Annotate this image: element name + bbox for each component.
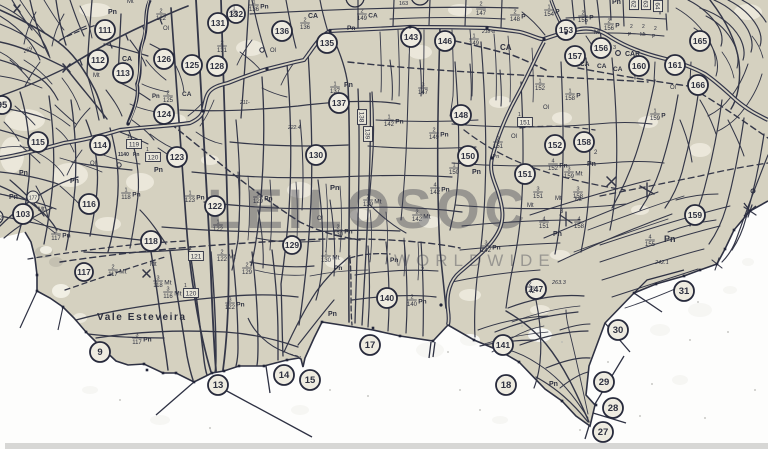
svg-text:1: 1 xyxy=(518,112,521,118)
svg-text:Pn: Pn xyxy=(553,231,562,238)
svg-text:Mt: Mt xyxy=(374,199,381,206)
svg-text:123: 123 xyxy=(170,152,184,162)
svg-text:161: 161 xyxy=(668,60,682,70)
svg-text:27: 27 xyxy=(598,427,609,438)
svg-text:1: 1 xyxy=(387,115,390,121)
svg-text:62: 62 xyxy=(629,0,636,8)
svg-text:142: 142 xyxy=(430,190,441,196)
svg-text:116: 116 xyxy=(163,294,173,300)
svg-text:139: 139 xyxy=(363,129,370,140)
svg-text:3: 3 xyxy=(484,241,487,247)
svg-text:Mt: Mt xyxy=(575,171,582,178)
svg-text:2: 2 xyxy=(303,18,306,24)
svg-text:211-: 211- xyxy=(239,100,250,106)
svg-text:158: 158 xyxy=(574,224,585,230)
svg-text:155: 155 xyxy=(578,18,589,24)
svg-text:122: 122 xyxy=(208,201,222,211)
svg-text:151: 151 xyxy=(493,144,504,150)
svg-text:130: 130 xyxy=(333,232,344,238)
svg-text:CA: CA xyxy=(580,61,590,68)
svg-text:131: 131 xyxy=(217,48,228,54)
svg-text:3: 3 xyxy=(166,287,169,293)
svg-text:17: 17 xyxy=(365,340,376,351)
svg-text:2: 2 xyxy=(189,246,192,252)
svg-text:Ol: Ol xyxy=(90,161,96,167)
svg-text:Mt: Mt xyxy=(332,255,339,262)
svg-text:Mt: Mt xyxy=(38,207,45,213)
svg-text:Pn: Pn xyxy=(154,167,163,174)
svg-text:2: 2 xyxy=(607,19,610,25)
svg-text:18: 18 xyxy=(501,380,512,391)
svg-text:150: 150 xyxy=(449,170,460,176)
svg-text:3: 3 xyxy=(156,276,159,282)
svg-text:126: 126 xyxy=(157,54,171,64)
svg-text:143: 143 xyxy=(404,32,418,42)
svg-text:146: 146 xyxy=(438,36,452,46)
svg-text:CA: CA xyxy=(368,13,378,20)
svg-text:Mt: Mt xyxy=(174,291,181,298)
svg-text:Mt: Mt xyxy=(127,0,134,5)
svg-text:2: 2 xyxy=(245,263,248,269)
svg-text:157: 157 xyxy=(568,51,582,61)
svg-text:1: 1 xyxy=(188,191,191,197)
svg-text:2: 2 xyxy=(654,26,657,32)
svg-text:Pn: Pn xyxy=(132,192,140,199)
svg-text:Mt: Mt xyxy=(150,262,157,268)
svg-text:1: 1 xyxy=(472,34,475,40)
svg-text:Pn: Pn xyxy=(559,163,567,170)
svg-text:114: 114 xyxy=(93,140,107,150)
svg-text:2: 2 xyxy=(528,282,531,288)
svg-text:CAR: CAR xyxy=(625,51,640,58)
svg-text:Pn: Pn xyxy=(344,229,352,236)
svg-text:149: 149 xyxy=(429,135,440,141)
svg-text:Mt: Mt xyxy=(527,203,534,209)
svg-text:112: 112 xyxy=(91,55,105,65)
svg-text:129: 129 xyxy=(242,270,253,276)
svg-text:64: 64 xyxy=(653,2,660,10)
svg-text:151: 151 xyxy=(520,120,531,127)
svg-text:2: 2 xyxy=(642,24,645,30)
svg-text:177: 177 xyxy=(29,196,38,202)
svg-text:136: 136 xyxy=(300,25,311,31)
svg-text:140: 140 xyxy=(407,302,418,308)
svg-text:138: 138 xyxy=(357,112,364,123)
svg-text:2: 2 xyxy=(410,295,413,301)
svg-text:9: 9 xyxy=(97,347,102,358)
svg-text:122: 122 xyxy=(213,227,224,233)
svg-text:1: 1 xyxy=(452,163,455,169)
svg-text:158: 158 xyxy=(573,194,584,200)
svg-text:15: 15 xyxy=(305,375,316,386)
svg-text:152: 152 xyxy=(535,86,546,92)
svg-text:Pn: Pn xyxy=(347,25,355,32)
svg-text:129: 129 xyxy=(253,199,264,205)
svg-text:136: 136 xyxy=(275,26,289,36)
svg-text:CA: CA xyxy=(182,91,192,98)
svg-text:4: 4 xyxy=(577,217,580,223)
svg-text:Pn: Pn xyxy=(328,311,337,318)
svg-text:Pn: Pn xyxy=(344,82,353,89)
svg-text:3: 3 xyxy=(421,83,424,89)
svg-text:Ol: Ol xyxy=(670,85,676,91)
svg-text:Pn: Pn xyxy=(334,265,342,272)
svg-text:1: 1 xyxy=(538,79,541,85)
svg-text:14: 14 xyxy=(279,370,290,381)
svg-text:118: 118 xyxy=(121,195,131,201)
svg-text:Mt: Mt xyxy=(228,254,235,261)
svg-text:Pn: Pn xyxy=(418,299,426,306)
svg-text:2: 2 xyxy=(496,137,499,143)
svg-text:117: 117 xyxy=(77,267,91,277)
svg-text:218-a: 218-a xyxy=(481,29,495,35)
svg-text:Pn: Pn xyxy=(492,245,500,252)
svg-text:Pn: Pn xyxy=(472,169,481,176)
svg-text:2: 2 xyxy=(166,91,169,97)
svg-text:142: 142 xyxy=(481,248,492,254)
svg-text:Pn: Pn xyxy=(236,302,244,309)
svg-text:156: 156 xyxy=(604,26,615,32)
svg-text:4: 4 xyxy=(648,235,651,241)
svg-text:13: 13 xyxy=(213,380,224,391)
svg-text:117: 117 xyxy=(132,340,142,346)
svg-text:115: 115 xyxy=(31,137,45,147)
svg-text:31: 31 xyxy=(679,286,690,297)
svg-text:124: 124 xyxy=(157,109,171,119)
svg-text:120: 120 xyxy=(148,155,159,162)
svg-text:1: 1 xyxy=(232,6,235,12)
svg-text:151: 151 xyxy=(518,169,532,179)
svg-text:3: 3 xyxy=(567,167,570,173)
svg-text:CA: CA xyxy=(613,66,623,73)
svg-text:130: 130 xyxy=(309,150,323,160)
svg-text:113: 113 xyxy=(116,68,130,78)
svg-text:Pn: Pn xyxy=(264,196,272,203)
svg-text:28: 28 xyxy=(608,403,619,414)
svg-text:P: P xyxy=(615,23,620,30)
svg-text:Mt: Mt xyxy=(164,280,171,287)
svg-text:1: 1 xyxy=(256,192,259,198)
svg-text:1140: 1140 xyxy=(118,152,129,158)
svg-text:122: 122 xyxy=(156,16,167,22)
svg-text:147: 147 xyxy=(418,90,429,96)
svg-text:120: 120 xyxy=(186,291,197,298)
svg-text:131: 131 xyxy=(211,18,225,28)
svg-text:137: 137 xyxy=(330,89,341,95)
svg-text:2: 2 xyxy=(336,225,339,231)
svg-text:CA: CA xyxy=(122,56,132,63)
svg-text:1: 1 xyxy=(547,5,550,11)
svg-text:Pn: Pn xyxy=(62,233,70,240)
svg-text:2: 2 xyxy=(513,10,516,16)
svg-text:1: 1 xyxy=(146,147,149,153)
svg-text:1: 1 xyxy=(54,229,57,235)
svg-text:Pn: Pn xyxy=(9,194,18,201)
svg-text:158: 158 xyxy=(565,96,576,102)
svg-text:Ol: Ol xyxy=(270,48,276,54)
svg-text:152: 152 xyxy=(548,140,562,150)
svg-text:CA: CA xyxy=(597,63,607,70)
svg-text:137: 137 xyxy=(332,98,346,108)
svg-text:Mt: Mt xyxy=(640,32,646,38)
svg-text:2: 2 xyxy=(581,11,584,17)
svg-text:Mt: Mt xyxy=(119,269,126,276)
svg-text:Pn: Pn xyxy=(441,187,449,194)
svg-text:122: 122 xyxy=(225,305,236,311)
svg-text:Pn: Pn xyxy=(19,170,28,177)
svg-text:159: 159 xyxy=(564,174,575,180)
svg-text:150: 150 xyxy=(461,151,475,161)
svg-text:95: 95 xyxy=(0,100,8,111)
svg-text:63: 63 xyxy=(641,0,648,8)
svg-text:Pn: Pn xyxy=(196,195,204,202)
svg-text:2: 2 xyxy=(479,2,482,8)
svg-text:Pn: Pn xyxy=(152,94,160,100)
svg-text:2: 2 xyxy=(111,265,114,271)
svg-text:156: 156 xyxy=(594,43,608,53)
svg-text:2: 2 xyxy=(159,9,162,15)
svg-text:33: 33 xyxy=(231,13,238,19)
svg-text:Pn: Pn xyxy=(108,9,117,16)
svg-text:Pn: Pn xyxy=(664,234,676,244)
svg-text:Pn: Pn xyxy=(549,381,558,388)
svg-text:3: 3 xyxy=(135,333,138,339)
svg-text:2: 2 xyxy=(366,195,369,201)
svg-text:1: 1 xyxy=(124,188,127,194)
svg-text:1: 1 xyxy=(653,109,656,115)
svg-text:Pn: Pn xyxy=(143,337,151,344)
svg-text:Ol: Ol xyxy=(511,134,517,140)
svg-text:2: 2 xyxy=(220,250,223,256)
svg-text:Ol: Ol xyxy=(317,216,323,222)
svg-text:4: 4 xyxy=(433,183,436,189)
svg-text:103: 103 xyxy=(16,209,30,219)
svg-text:121: 121 xyxy=(191,254,202,261)
svg-text:118: 118 xyxy=(153,283,163,289)
svg-text:147: 147 xyxy=(476,11,487,17)
svg-text:P: P xyxy=(661,113,666,120)
svg-text:Ol: Ol xyxy=(543,105,549,111)
svg-text:3: 3 xyxy=(613,45,616,51)
svg-text:130: 130 xyxy=(321,258,332,264)
svg-text:165: 165 xyxy=(693,36,707,46)
svg-text:1: 1 xyxy=(324,251,327,257)
svg-text:122: 122 xyxy=(217,257,228,263)
svg-text:2: 2 xyxy=(432,128,435,134)
svg-text:149: 149 xyxy=(469,41,480,47)
svg-text:149: 149 xyxy=(357,16,368,22)
svg-text:135: 135 xyxy=(320,38,334,48)
svg-text:222.4: 222.4 xyxy=(287,125,301,131)
svg-text:Pn: Pn xyxy=(440,132,448,139)
svg-text:4: 4 xyxy=(551,159,554,165)
svg-text:30: 30 xyxy=(613,325,624,336)
svg-text:29: 29 xyxy=(599,377,610,388)
svg-text:136: 136 xyxy=(249,7,260,13)
svg-text:118: 118 xyxy=(144,236,158,246)
svg-text:Pn: Pn xyxy=(260,4,268,11)
svg-text:2: 2 xyxy=(415,210,418,216)
svg-text:CA: CA xyxy=(500,43,512,52)
svg-text:142: 142 xyxy=(525,289,536,295)
svg-text:128: 128 xyxy=(210,61,224,71)
svg-text:151: 151 xyxy=(539,224,550,230)
svg-text:1: 1 xyxy=(568,89,571,95)
svg-text:152: 152 xyxy=(548,166,559,172)
svg-text:P: P xyxy=(589,15,594,22)
svg-text:125: 125 xyxy=(185,60,199,70)
svg-text:Mt: Mt xyxy=(594,30,601,36)
svg-text:158: 158 xyxy=(577,137,591,147)
svg-text:Mt: Mt xyxy=(423,214,430,221)
svg-text:4: 4 xyxy=(542,217,545,223)
svg-text:139: 139 xyxy=(363,202,374,208)
svg-text:159: 159 xyxy=(688,210,702,220)
svg-text:Pn: Pn xyxy=(133,152,139,158)
svg-text:154: 154 xyxy=(544,12,555,18)
svg-text:141: 141 xyxy=(496,340,510,350)
svg-text:142: 142 xyxy=(384,122,395,128)
svg-text:Pn: Pn xyxy=(330,183,340,192)
svg-text:125: 125 xyxy=(163,98,174,104)
svg-text:2: 2 xyxy=(630,24,633,30)
svg-text:Pn: Pn xyxy=(390,257,398,264)
svg-text:3: 3 xyxy=(228,298,231,304)
svg-text:129: 129 xyxy=(285,240,299,250)
svg-text:163: 163 xyxy=(399,1,408,7)
svg-text:Pn: Pn xyxy=(70,178,79,185)
svg-text:Pn: Pn xyxy=(395,119,403,126)
svg-text:142: 142 xyxy=(412,217,423,223)
svg-text:1: 1 xyxy=(184,283,187,289)
svg-text:P: P xyxy=(521,14,526,21)
svg-text:123: 123 xyxy=(185,198,196,204)
svg-text:111: 111 xyxy=(98,25,112,35)
svg-text:2: 2 xyxy=(360,9,363,15)
svg-text:263.3: 263.3 xyxy=(551,280,567,286)
svg-text:Ol: Ol xyxy=(163,26,169,32)
svg-text:P: P xyxy=(576,93,581,100)
svg-text:Pn: Pn xyxy=(612,0,621,6)
svg-text:1: 1 xyxy=(216,220,219,226)
svg-text:1: 1 xyxy=(333,82,336,88)
svg-text:P: P xyxy=(555,9,560,16)
svg-text:3: 3 xyxy=(576,187,579,193)
svg-text:148: 148 xyxy=(454,110,468,120)
svg-text:2: 2 xyxy=(220,41,223,47)
svg-text:119: 119 xyxy=(129,142,140,149)
svg-text:160: 160 xyxy=(632,61,646,71)
svg-text:Mt: Mt xyxy=(555,196,562,202)
svg-text:CA: CA xyxy=(308,13,318,20)
svg-text:117: 117 xyxy=(51,236,61,242)
svg-text:Vale Esteveira: Vale Esteveira xyxy=(97,312,187,323)
svg-text:116: 116 xyxy=(82,199,96,209)
svg-text:Mt: Mt xyxy=(93,73,100,79)
svg-text:148: 148 xyxy=(510,17,521,23)
svg-text:140: 140 xyxy=(380,293,394,303)
svg-text:166: 166 xyxy=(691,80,705,90)
svg-text:242.1: 242.1 xyxy=(654,260,669,266)
svg-text:151: 151 xyxy=(533,194,544,200)
svg-text:159: 159 xyxy=(650,116,661,122)
svg-text:117: 117 xyxy=(108,272,118,278)
svg-text:Pn: Pn xyxy=(587,161,596,168)
svg-text:1: 1 xyxy=(127,134,130,140)
svg-text:3: 3 xyxy=(536,187,539,193)
svg-text:155: 155 xyxy=(645,242,656,248)
